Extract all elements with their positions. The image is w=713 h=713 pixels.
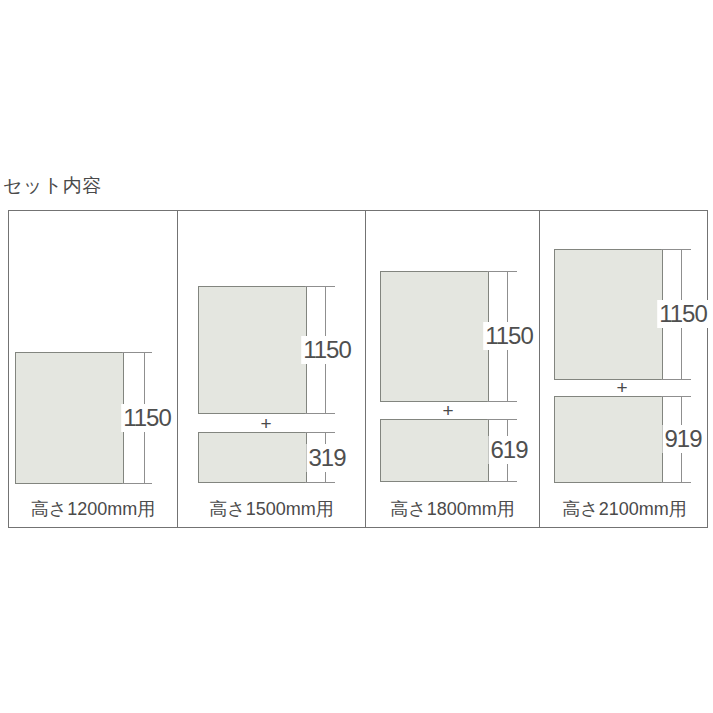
dimension-value: 1150 bbox=[121, 404, 173, 432]
diagram-title: セット内容 bbox=[3, 175, 102, 197]
panel-rect bbox=[198, 286, 307, 414]
dimension-tick bbox=[487, 271, 517, 272]
dimension-tick bbox=[122, 352, 152, 353]
panel-rect bbox=[380, 271, 489, 402]
dimension-value: 319 bbox=[306, 444, 347, 472]
dimension-value: 1150 bbox=[483, 322, 535, 350]
panel-rect bbox=[198, 432, 307, 483]
panel-rect bbox=[554, 249, 663, 380]
diagram-canvas: セット内容 1150 高さ1200mm用 1150 + 319 高さ1500mm… bbox=[0, 0, 713, 713]
dimension-value: 619 bbox=[488, 436, 529, 464]
dimension-tick bbox=[122, 483, 152, 484]
dimension-tick bbox=[305, 482, 335, 483]
dimension-tick bbox=[487, 481, 517, 482]
column-label: 高さ1800mm用 bbox=[366, 499, 539, 519]
panel-rect bbox=[554, 396, 663, 483]
dimension-value: 919 bbox=[662, 425, 703, 453]
set-column-1800: 1150 + 619 高さ1800mm用 bbox=[365, 211, 539, 527]
column-label: 高さ1500mm用 bbox=[178, 499, 365, 519]
dimension-tick bbox=[487, 419, 517, 420]
set-column-1500: 1150 + 319 高さ1500mm用 bbox=[177, 211, 365, 527]
dimension-value: 1150 bbox=[301, 336, 353, 364]
column-label: 高さ2100mm用 bbox=[540, 499, 709, 519]
column-label: 高さ1200mm用 bbox=[9, 499, 177, 519]
dimension-tick bbox=[305, 286, 335, 287]
set-column-2100: 1150 + 919 高さ2100mm用 bbox=[539, 211, 709, 527]
panel-rect bbox=[15, 352, 124, 484]
dimension-tick bbox=[661, 379, 691, 380]
set-contents-table: 1150 高さ1200mm用 1150 + 319 高さ1500mm用 1150 bbox=[8, 210, 708, 528]
dimension-tick bbox=[305, 432, 335, 433]
dimension-tick bbox=[661, 396, 691, 397]
dimension-tick bbox=[487, 401, 517, 402]
dimension-tick bbox=[305, 413, 335, 414]
dimension-tick bbox=[661, 249, 691, 250]
set-column-1200: 1150 高さ1200mm用 bbox=[9, 211, 177, 527]
dimension-tick bbox=[661, 482, 691, 483]
dimension-value: 1150 bbox=[657, 300, 709, 328]
panel-rect bbox=[380, 419, 489, 482]
